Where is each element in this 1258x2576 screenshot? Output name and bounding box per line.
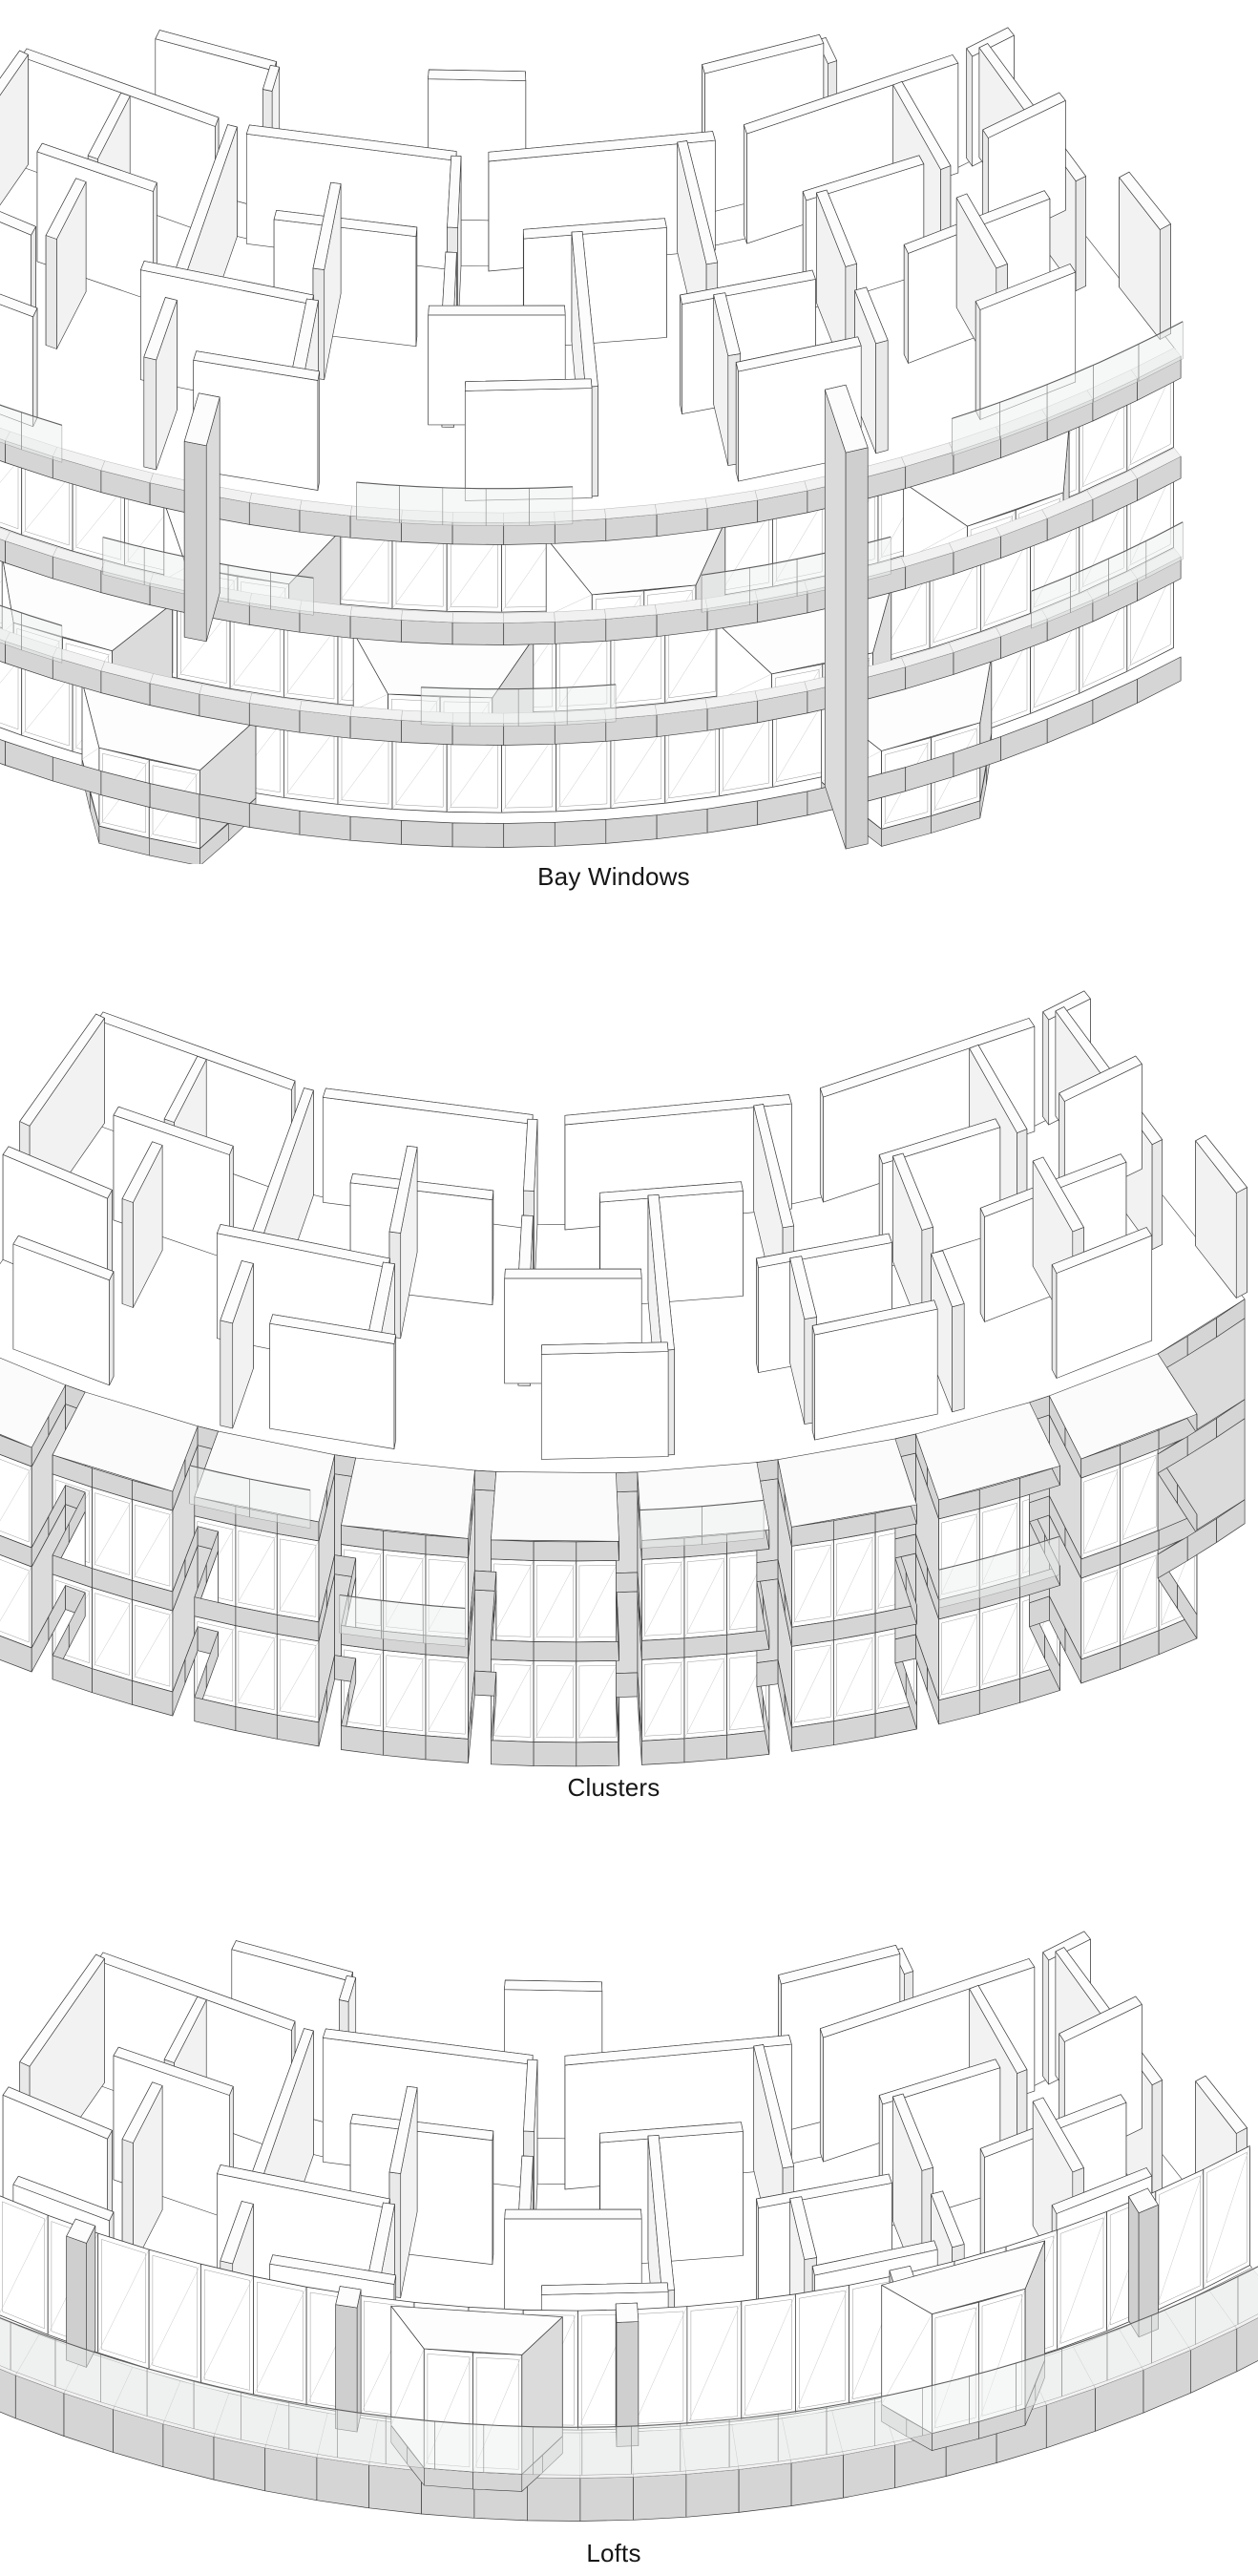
caption-clusters: Clusters — [0, 1770, 1243, 1805]
figure-lofts — [0, 1910, 1258, 2547]
lofts-drawing — [0, 1910, 1258, 2547]
caption-lofts: Lofts — [0, 2536, 1243, 2570]
figure-clusters — [0, 983, 1258, 1790]
drawing-sheet: Bay Windows Clusters Lofts — [0, 0, 1258, 2576]
bay-windows-drawing — [0, 0, 1258, 864]
figure-bay-windows — [0, 0, 1258, 864]
clusters-drawing — [0, 983, 1258, 1790]
caption-bay-windows: Bay Windows — [0, 859, 1243, 894]
